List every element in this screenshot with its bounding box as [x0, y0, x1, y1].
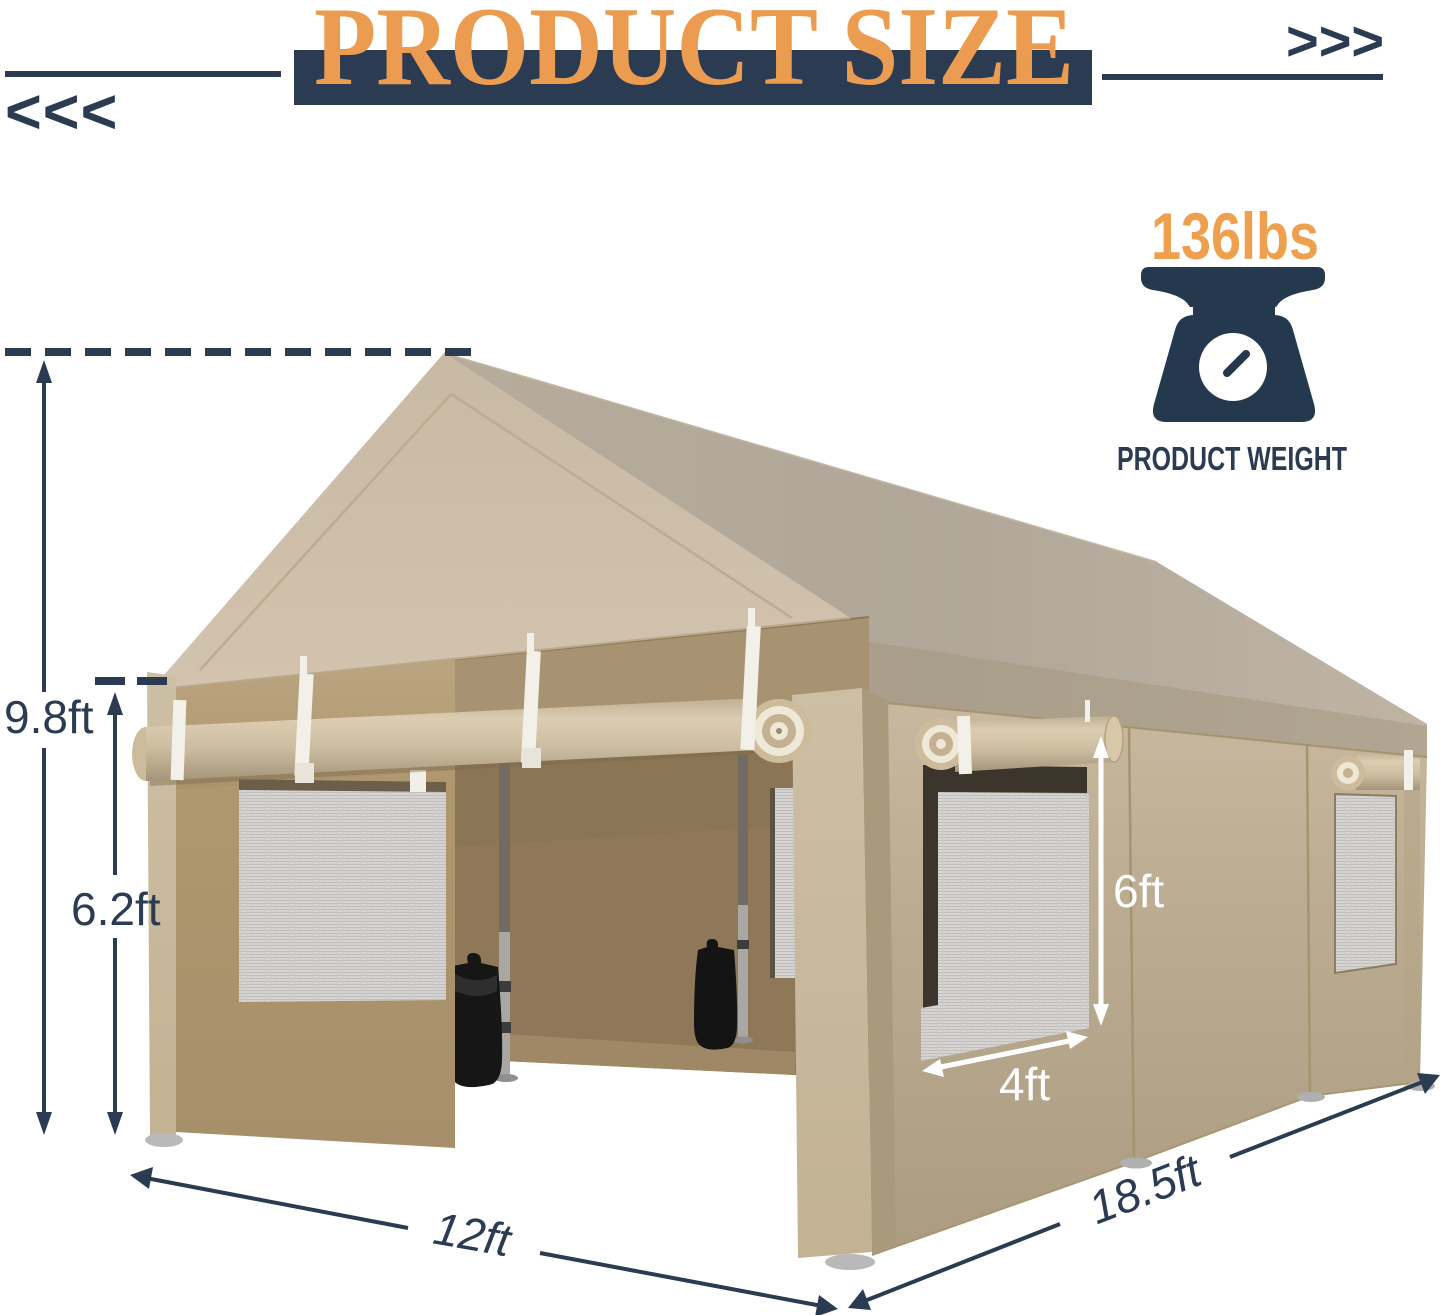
svg-text:9.8ft: 9.8ft	[4, 691, 94, 743]
svg-text:4ft: 4ft	[999, 1058, 1050, 1110]
svg-text:PRODUCT SIZE: PRODUCT SIZE	[314, 0, 1074, 109]
svg-text:<<<: <<<	[5, 77, 118, 147]
svg-text:6.2ft: 6.2ft	[71, 883, 161, 935]
svg-text:>>>: >>>	[1286, 9, 1384, 72]
svg-text:PRODUCT WEIGHT: PRODUCT WEIGHT	[1117, 440, 1347, 477]
svg-text:136lbs: 136lbs	[1151, 199, 1319, 273]
svg-text:6ft: 6ft	[1113, 865, 1164, 917]
